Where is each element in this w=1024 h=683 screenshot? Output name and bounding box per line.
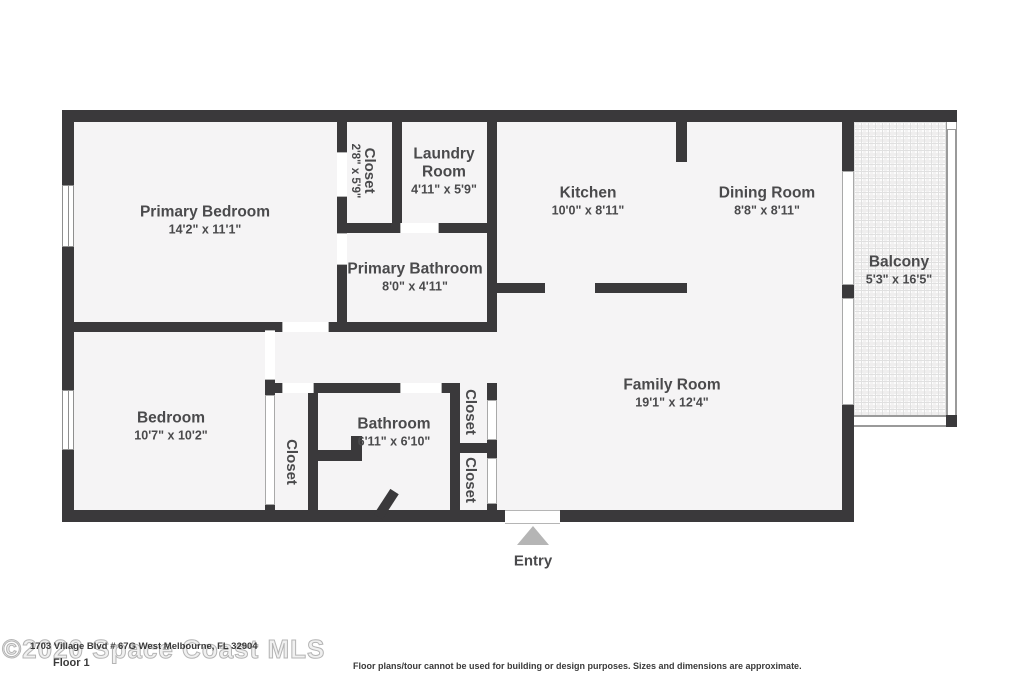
entry-opening [505,510,560,524]
room-label-balcony: Balcony 5'3" x 16'5" [866,253,932,286]
balcony-slider-top [842,171,854,285]
balcony-corner-block [946,415,957,427]
room-dims: 8'8" x 8'11" [719,203,815,217]
floor-number-label: Floor 1 [53,657,90,669]
room-name: Balcony [866,253,932,271]
bedroom-window [62,390,74,450]
room-label-primary-bathroom: Primary Bathroom 8'0" x 4'11" [347,260,482,293]
window-pane-line [68,391,69,449]
wall-top [62,110,957,122]
room-name: Closet [283,439,299,485]
room-name: Family Room [623,376,720,394]
balcony-bottom-railing [854,415,946,427]
window-pane-line [68,186,69,246]
property-address: 1703 Village Blvd # 67G West Melbourne, … [30,641,258,652]
room-name: Primary Bathroom [347,260,482,278]
wall-kitchen-dining-stub [676,122,687,162]
wall-hall-closet-divider [450,443,497,453]
wall-closet-laundry-divider [392,110,402,233]
opening-hall-nook [282,383,314,393]
room-name: Kitchen [552,184,625,202]
room-dims: 19'1" x 12'4" [623,395,720,409]
room-label-hall-closet-bottom: Closet [462,457,478,503]
room-label-bedroom: Bedroom 10'7" x 10'2" [134,409,207,442]
room-dims: 8'0" x 4'11" [347,279,482,293]
entry-direction-triangle [517,526,549,545]
wall-primary-bathroom-bottom [327,322,497,332]
room-dims: 4'11" x 5'9" [402,182,486,196]
entry-label: Entry [514,553,552,570]
wall-kitchen-west [487,110,497,332]
room-label-family: Family Room 19'1" x 12'4" [623,376,720,409]
disclaimer-text: Floor plans/tour cannot be used for buil… [353,661,802,671]
opening-primary-closet-door [337,152,347,197]
primary-bedroom-window [62,185,74,247]
opening-hallway [282,322,329,332]
room-label-dining: Dining Room 8'8" x 8'11" [719,184,815,217]
room-name: Laundry Room [402,146,486,182]
bedroom-closet-doors [265,395,275,505]
room-label-bathroom: Bathroom 6'11" x 6'10" [357,415,430,448]
hall-closet-top-door [487,400,497,440]
room-label-bedroom-closet: Closet [283,439,299,485]
room-name: Primary Bedroom [140,203,270,221]
room-name: Bedroom [134,409,207,427]
room-name: Closet [462,457,478,503]
room-name: Closet [361,144,377,199]
wall-primary-bedroom-bottom [62,322,282,332]
opening-laundry-door [400,223,439,233]
room-dims: 2'8" x 5'9" [349,144,361,199]
room-label-hall-closet-top: Closet [462,389,478,435]
opening-bathroom-door [400,383,442,393]
hall-closet-bottom-door [487,458,497,504]
wall-kitchen-partial-right [595,283,687,293]
room-dims: 5'3" x 16'5" [866,272,932,286]
room-label-kitchen: Kitchen 10'0" x 8'11" [552,184,625,217]
room-label-primary-closet: Closet 2'8" x 5'9" [349,144,377,199]
room-dims: 6'11" x 6'10" [357,434,430,448]
wall-primary-bedroom-right [337,110,347,332]
room-dims: 14'2" x 11'1" [140,222,270,236]
room-label-primary-bedroom: Primary Bedroom 14'2" x 11'1" [140,203,270,236]
room-dims: 10'0" x 8'11" [552,203,625,217]
wall-left [62,110,74,522]
room-dims: 10'7" x 10'2" [134,428,207,442]
balcony-slider-bottom [842,298,854,405]
wall-kitchen-partial-left [497,283,545,293]
room-name: Bathroom [357,415,430,433]
balcony-right-railing [946,122,957,417]
room-name: Closet [462,389,478,435]
opening-primary-bathroom-door [337,233,347,265]
room-name: Dining Room [719,184,815,202]
opening-bedroom-door [265,330,275,380]
wall-bedroom-closet-right [308,383,318,522]
room-label-laundry: Laundry Room 4'11" x 5'9" [402,146,486,197]
floor-plan-canvas: Primary Bedroom 14'2" x 11'1" Closet 2'8… [0,0,1024,683]
